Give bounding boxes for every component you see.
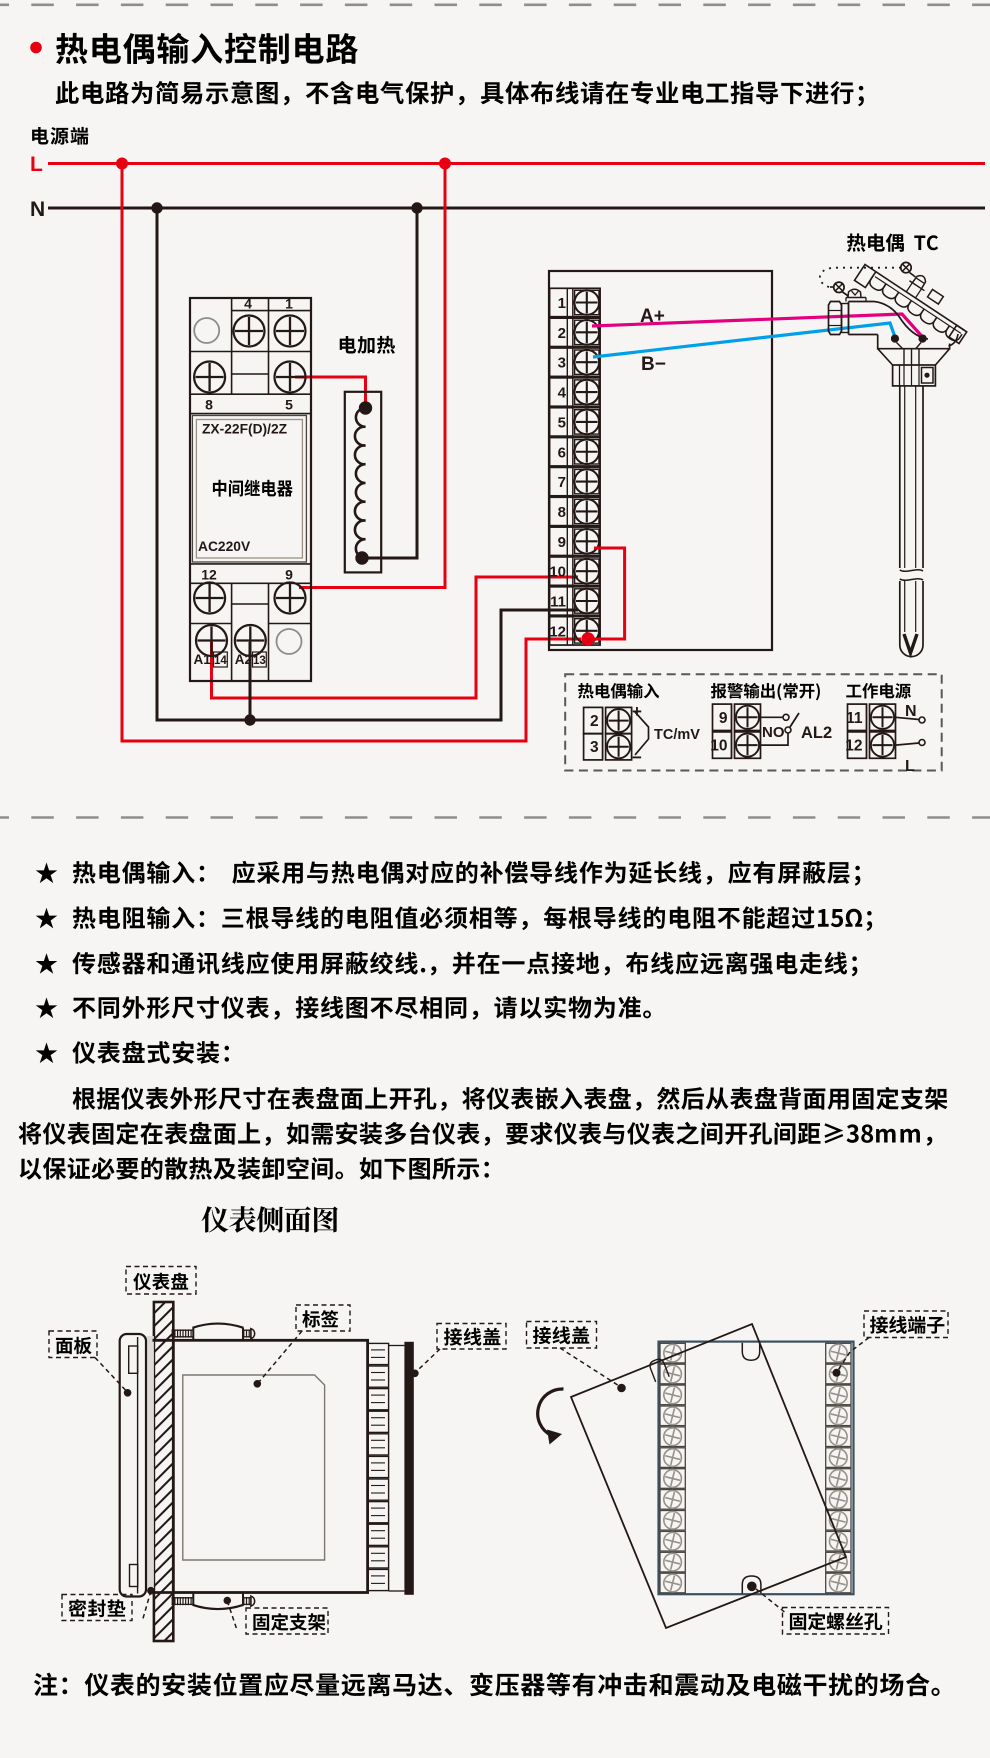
svg-text:L: L: [30, 153, 43, 176]
svg-text:4: 4: [558, 385, 567, 402]
svg-text:B−: B−: [641, 354, 666, 375]
svg-text:5: 5: [558, 414, 566, 431]
svg-text:10: 10: [710, 738, 727, 755]
svg-text:4: 4: [244, 296, 252, 312]
svg-text:3: 3: [590, 739, 599, 756]
svg-text:N: N: [905, 703, 917, 720]
svg-text:NO: NO: [762, 724, 785, 741]
svg-text:−: −: [632, 748, 642, 767]
svg-text:A2: A2: [235, 652, 252, 667]
svg-text:9: 9: [285, 567, 293, 583]
svg-text:11: 11: [846, 710, 863, 727]
svg-text:L: L: [905, 758, 915, 775]
svg-text:7: 7: [558, 474, 566, 491]
svg-text:12: 12: [549, 623, 566, 640]
svg-text:AL2: AL2: [801, 724, 832, 742]
svg-text:2: 2: [590, 713, 599, 730]
svg-text:1: 1: [285, 296, 293, 312]
svg-text:12: 12: [201, 567, 217, 583]
svg-text:AC220V: AC220V: [198, 539, 251, 554]
svg-text:A1: A1: [194, 652, 212, 667]
svg-text:5: 5: [285, 397, 293, 413]
svg-text:2: 2: [558, 325, 566, 342]
svg-text:N: N: [30, 198, 45, 221]
svg-text:1: 1: [558, 295, 566, 312]
svg-text:6: 6: [558, 444, 566, 461]
svg-text:9: 9: [558, 534, 566, 551]
svg-text:12: 12: [845, 738, 862, 755]
svg-text:8: 8: [205, 397, 213, 413]
svg-text:TC/mV: TC/mV: [654, 727, 700, 743]
svg-text:9: 9: [719, 710, 728, 727]
svg-text:10: 10: [549, 564, 566, 581]
svg-text:8: 8: [558, 504, 566, 521]
svg-text:11: 11: [550, 594, 566, 611]
svg-text:14: 14: [214, 655, 227, 667]
svg-text:3: 3: [558, 355, 566, 372]
svg-text:13: 13: [253, 655, 266, 667]
svg-text:ZX-22F(D)/2Z: ZX-22F(D)/2Z: [202, 422, 288, 437]
